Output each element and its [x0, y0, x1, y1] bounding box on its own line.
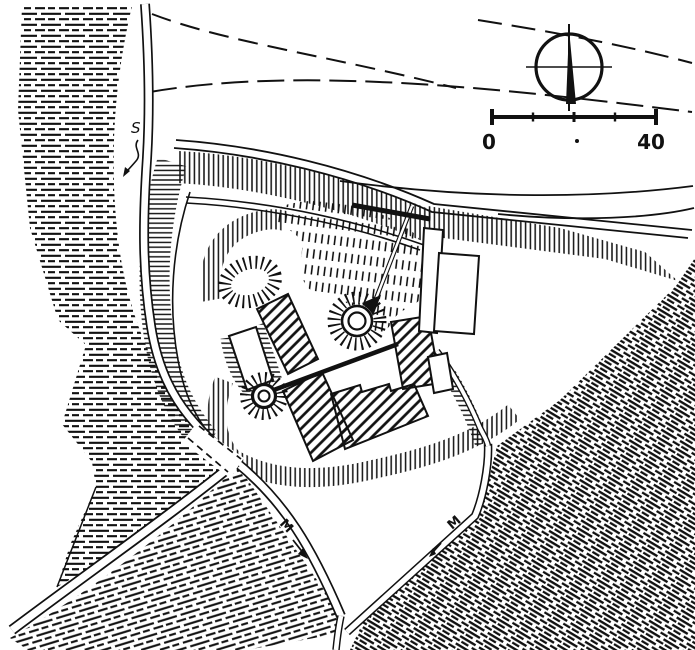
scale-zero-label: 0 [482, 130, 496, 154]
scale-dot [575, 139, 579, 143]
castle-site-plan: 0 40 S M M [0, 0, 695, 650]
site-plan-drawing: 0 40 S M M [0, 0, 695, 650]
scale-forty-label: 40 [637, 130, 665, 154]
tower-inner-wall [349, 313, 366, 330]
well-shaft [259, 391, 270, 402]
building-outline-north-block [434, 253, 479, 334]
spring-label: S [131, 119, 141, 137]
